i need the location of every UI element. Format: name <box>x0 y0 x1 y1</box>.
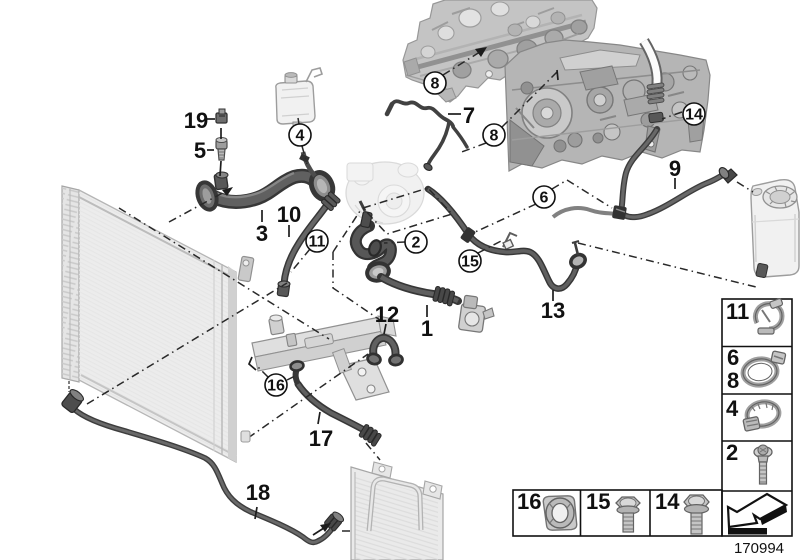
svg-text:8: 8 <box>727 368 739 393</box>
svg-text:3: 3 <box>256 221 268 246</box>
svg-text:2: 2 <box>412 235 421 252</box>
svg-text:12: 12 <box>375 302 399 327</box>
svg-text:170994: 170994 <box>734 540 784 557</box>
svg-text:6: 6 <box>540 190 549 207</box>
svg-text:15: 15 <box>586 489 610 514</box>
svg-text:1: 1 <box>421 316 433 341</box>
svg-text:15: 15 <box>461 254 479 271</box>
svg-text:16: 16 <box>267 378 285 395</box>
svg-text:14: 14 <box>655 489 680 514</box>
svg-text:11: 11 <box>309 234 326 251</box>
svg-text:4: 4 <box>726 396 739 421</box>
svg-text:18: 18 <box>246 480 270 505</box>
svg-text:7: 7 <box>463 103 475 128</box>
svg-text:19: 19 <box>184 108 208 133</box>
svg-text:4: 4 <box>296 128 305 145</box>
svg-text:8: 8 <box>490 128 499 145</box>
svg-text:6: 6 <box>727 345 739 370</box>
svg-text:16: 16 <box>517 489 541 514</box>
svg-text:17: 17 <box>309 426 333 451</box>
svg-text:9: 9 <box>669 156 681 181</box>
svg-text:5: 5 <box>194 138 206 163</box>
svg-text:11: 11 <box>726 299 749 324</box>
svg-text:10: 10 <box>277 202 301 227</box>
svg-text:14: 14 <box>685 107 703 124</box>
svg-text:13: 13 <box>541 298 565 323</box>
svg-text:8: 8 <box>431 76 440 93</box>
svg-text:2: 2 <box>726 440 738 465</box>
